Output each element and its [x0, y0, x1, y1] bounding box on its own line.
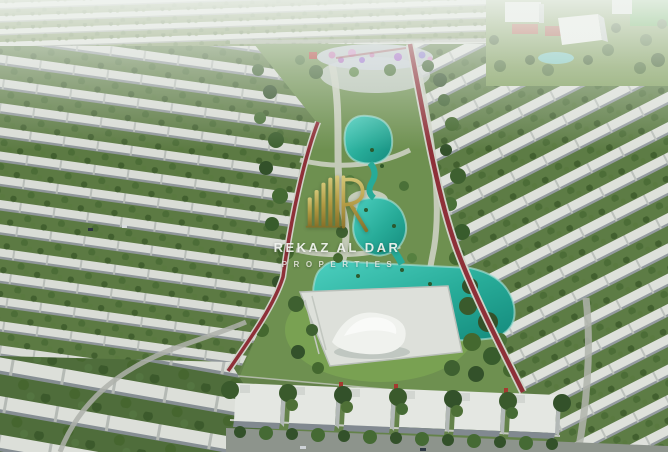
- masterplan-scene: [0, 0, 668, 452]
- haze-overlay: [0, 0, 668, 150]
- aerial-render-image: REKAZ AL DAR PROPERTIES: [0, 0, 668, 452]
